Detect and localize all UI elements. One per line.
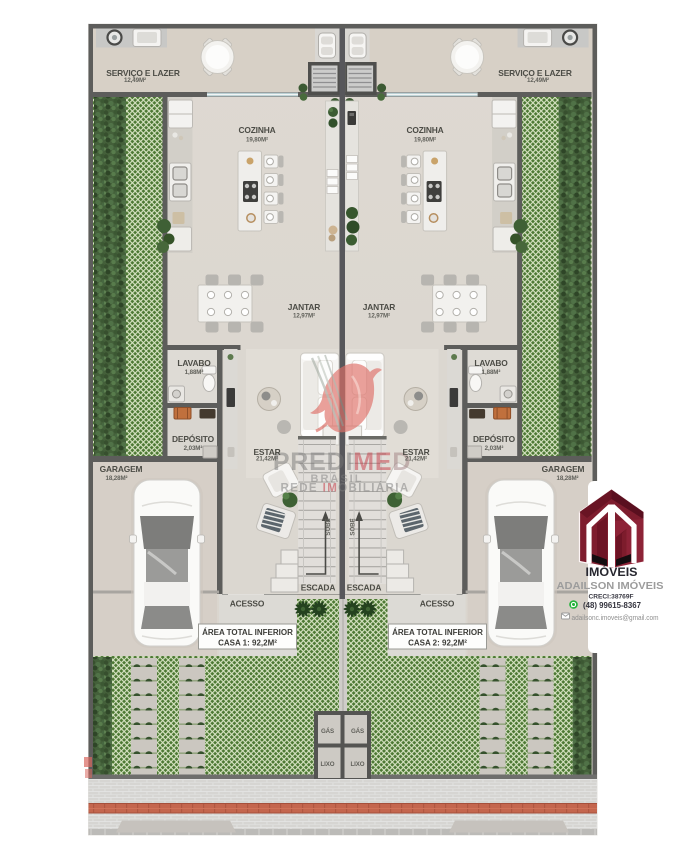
svg-text:18,28M²: 18,28M²	[106, 475, 128, 482]
svg-text:ÁREA TOTAL INFERIOR: ÁREA TOTAL INFERIOR	[202, 628, 293, 637]
svg-text:1,88M²: 1,88M²	[482, 369, 501, 376]
svg-text:12,49M²: 12,49M²	[527, 77, 549, 84]
svg-text:(48) 99615-8367: (48) 99615-8367	[583, 600, 641, 610]
svg-text:ÁREA TOTAL INFERIOR: ÁREA TOTAL INFERIOR	[392, 628, 483, 637]
svg-text:18,28M²: 18,28M²	[557, 475, 579, 482]
svg-text:ACESSO: ACESSO	[420, 599, 455, 609]
svg-text:ADAILSON IMÓVEIS: ADAILSON IMÓVEIS	[557, 579, 664, 592]
svg-text:GÁS: GÁS	[321, 728, 334, 735]
svg-text:2,03M²: 2,03M²	[485, 445, 504, 452]
svg-text:GARAGEM: GARAGEM	[542, 464, 585, 474]
svg-text:ESCADA: ESCADA	[347, 583, 382, 593]
svg-text:LAVABO: LAVABO	[474, 358, 508, 368]
svg-text:COZINHA: COZINHA	[406, 125, 443, 135]
svg-text:12,97M²: 12,97M²	[368, 313, 390, 320]
svg-text:CASA 2: 92,2M²: CASA 2: 92,2M²	[408, 639, 467, 648]
svg-text:SOBE: SOBE	[350, 518, 357, 535]
svg-text:12,49M²: 12,49M²	[124, 77, 146, 84]
svg-text:ESCADA: ESCADA	[301, 583, 336, 593]
svg-text:SOBE: SOBE	[325, 518, 332, 535]
svg-text:GARAGEM: GARAGEM	[100, 464, 143, 474]
svg-text:REDE IMOBILIÁRIA: REDE IMOBILIÁRIA	[280, 482, 409, 495]
svg-text:21,42M²: 21,42M²	[405, 456, 427, 463]
svg-text:DEPÓSITO: DEPÓSITO	[172, 433, 215, 444]
svg-text:LIXO: LIXO	[350, 761, 364, 768]
svg-text:DEPÓSITO: DEPÓSITO	[473, 433, 516, 444]
svg-text:19,80M²: 19,80M²	[414, 137, 436, 144]
svg-text:2,03M²: 2,03M²	[184, 445, 203, 452]
svg-text:COZINHA: COZINHA	[238, 125, 275, 135]
svg-text:PREDIMED: PREDIMED	[273, 448, 411, 476]
svg-text:adailsonc.imoveis@gmail.com: adailsonc.imoveis@gmail.com	[572, 613, 659, 622]
svg-text:1,88M²: 1,88M²	[185, 369, 204, 376]
svg-text:21,42M²: 21,42M²	[256, 456, 278, 463]
svg-text:LAVABO: LAVABO	[177, 358, 211, 368]
svg-text:LIXO: LIXO	[320, 761, 334, 768]
svg-text:IMÓVEIS: IMÓVEIS	[586, 564, 638, 579]
svg-text:CASA 1: 92,2M²: CASA 1: 92,2M²	[218, 639, 277, 648]
svg-text:19,80M²: 19,80M²	[246, 137, 268, 144]
svg-text:JANTAR: JANTAR	[363, 302, 396, 312]
svg-text:JANTAR: JANTAR	[288, 302, 321, 312]
svg-text:ACESSO: ACESSO	[230, 599, 265, 609]
svg-text:12,97M²: 12,97M²	[293, 313, 315, 320]
svg-text:GÁS: GÁS	[351, 728, 364, 735]
